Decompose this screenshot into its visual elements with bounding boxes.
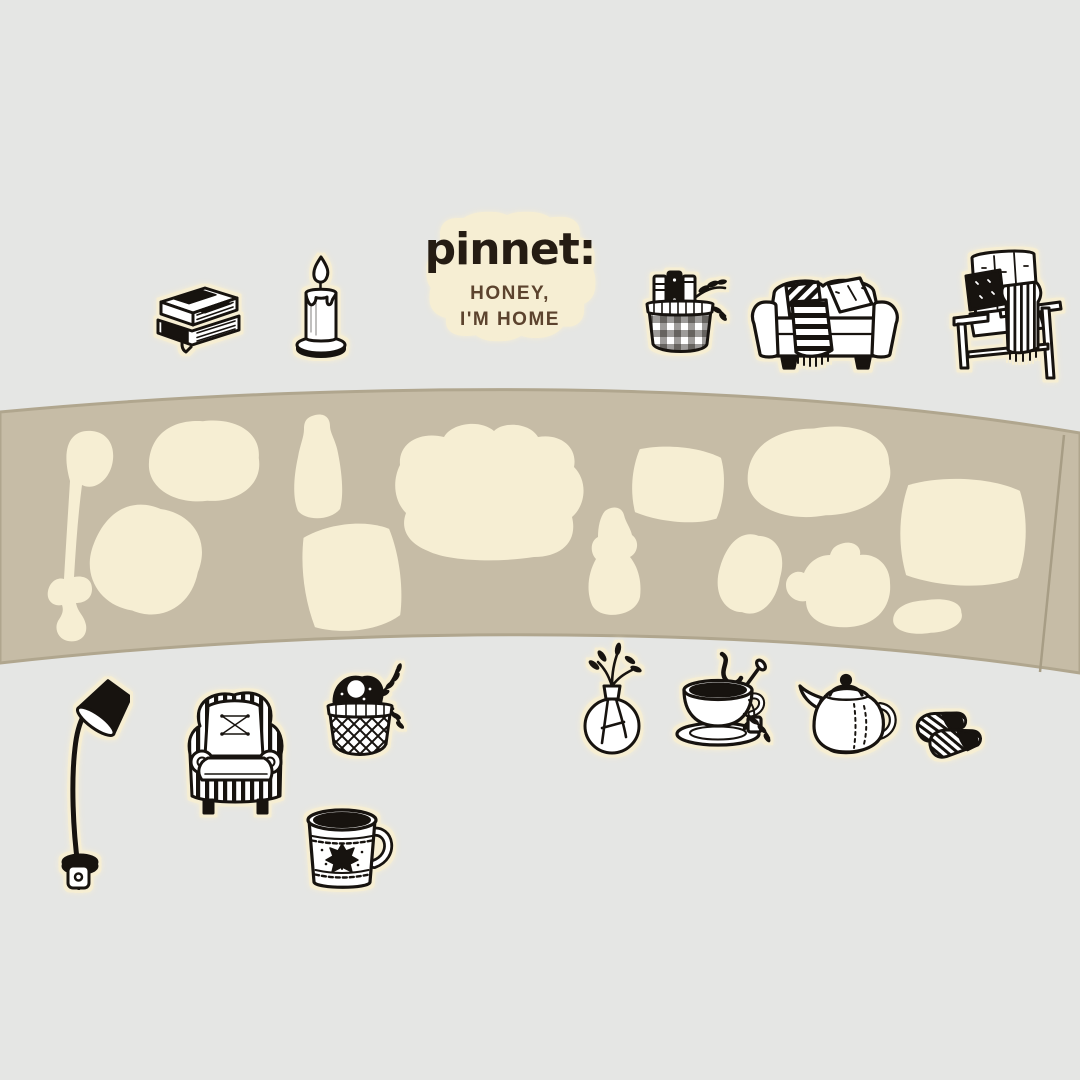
sticker-stacked-books: [146, 272, 250, 364]
coffee-mug-icon: [292, 792, 400, 900]
brand-wordmark: pinnet:: [425, 228, 596, 272]
wooden-armchair-icon: [942, 242, 1068, 390]
sticker-wingback-armchair: [178, 682, 294, 818]
sticker-plant-basket: [312, 658, 412, 768]
sticker-book-basket: [632, 260, 730, 366]
bud-vase-icon: [574, 642, 654, 760]
brand-tagline: HONEY, I'M HOME: [460, 281, 560, 332]
stacked-books-icon: [146, 272, 250, 364]
sticker-slippers: [912, 702, 1002, 766]
teacup-icon: [656, 648, 782, 762]
slippers-icon: [912, 702, 1002, 766]
book-basket-icon: [632, 260, 730, 366]
backing-strip: [0, 385, 1080, 685]
sticker-sheet-scene: pinnet: HONEY, I'M HOME: [0, 0, 1080, 1080]
sofa-icon: [744, 258, 908, 374]
sticker-bud-vase: [574, 642, 654, 760]
sticker-floor-lamp: [44, 662, 130, 890]
sticker-wooden-armchair: [942, 242, 1068, 390]
sticker-lit-candle: [284, 248, 358, 366]
lit-candle-icon: [284, 248, 358, 366]
wingback-armchair-icon: [178, 682, 294, 818]
brand-label-sticker: pinnet: HONEY, I'M HOME: [416, 212, 604, 352]
teapot-icon: [792, 668, 906, 764]
plant-basket-icon: [312, 658, 412, 768]
floor-lamp-icon: [44, 662, 130, 890]
sticker-teacup: [656, 648, 782, 762]
sticker-coffee-mug: [292, 792, 400, 900]
sticker-teapot: [792, 668, 906, 764]
sticker-sofa: [744, 258, 908, 374]
